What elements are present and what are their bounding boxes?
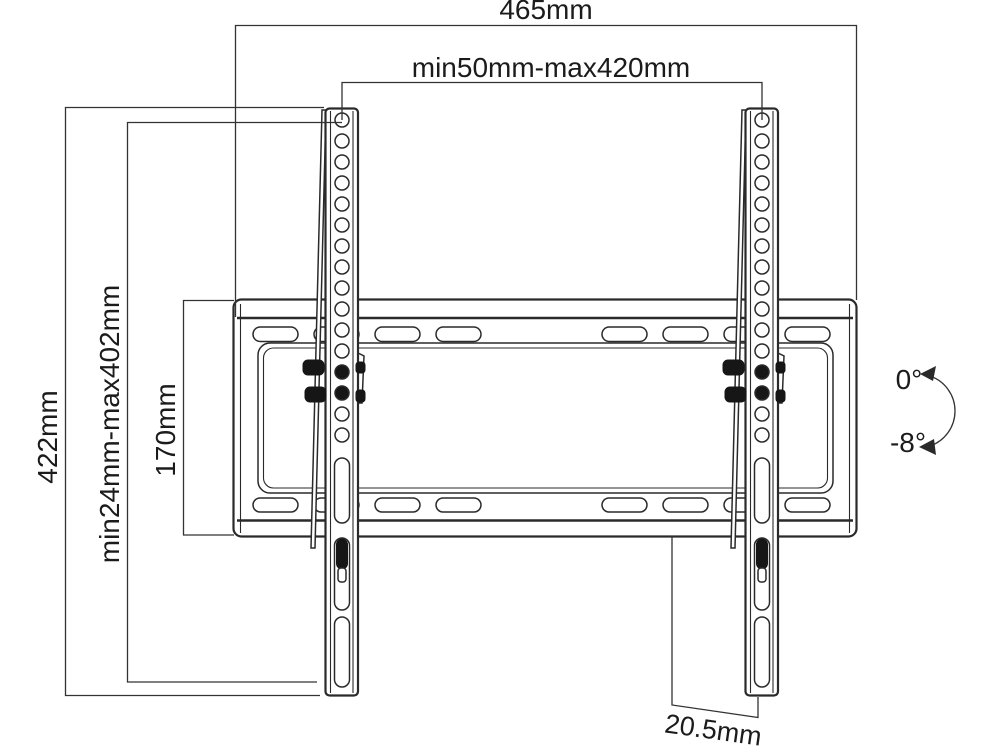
mounting-slot xyxy=(253,498,298,512)
vesa-hole xyxy=(755,218,769,232)
tilt-upper-label: 0° xyxy=(896,364,923,395)
vesa-hole xyxy=(755,302,769,316)
vesa-hole xyxy=(755,134,769,148)
vesa-hole xyxy=(335,428,349,442)
vesa-hole xyxy=(755,155,769,169)
pivot-nut xyxy=(776,390,785,402)
vesa-hole xyxy=(335,281,349,295)
vesa-hole-bolted xyxy=(755,365,769,379)
tilt-lock-clip xyxy=(338,568,346,582)
tilt-lock-bolt xyxy=(337,539,348,569)
arm-slot xyxy=(755,617,770,687)
dimension-plate-height: 170mm xyxy=(150,301,234,536)
tilt-arc xyxy=(930,376,955,446)
dim-plate-height-label: 170mm xyxy=(150,383,181,476)
vesa-hole xyxy=(335,302,349,316)
arm-slot xyxy=(755,458,770,523)
dimension-line xyxy=(184,301,235,536)
mounting-slot xyxy=(436,498,481,512)
pivot-bolt-head xyxy=(305,387,326,402)
tilt-lock-bolt xyxy=(757,539,768,569)
vesa-hole xyxy=(755,428,769,442)
vesa-hole xyxy=(335,218,349,232)
dimension-hole-span-horizontal: min50mm-max420mm xyxy=(342,52,762,120)
tilt-arrow-up-icon xyxy=(920,366,936,381)
mounting-slot xyxy=(253,327,298,342)
vesa-hole xyxy=(335,344,349,358)
vesa-hole xyxy=(755,323,769,337)
mounting-slot xyxy=(375,327,420,342)
vesa-hole xyxy=(335,407,349,421)
pivot-bolt-head xyxy=(723,360,744,375)
vesa-hole xyxy=(755,197,769,211)
vesa-hole-bolted xyxy=(755,386,769,400)
tilt-angle-indicator: 0° -8° xyxy=(890,364,955,458)
tilt-lock-clip xyxy=(758,568,766,582)
vesa-hole xyxy=(335,239,349,253)
vesa-hole-bolted xyxy=(335,386,349,400)
left-vesa-arm xyxy=(303,109,365,696)
mounting-slot xyxy=(663,498,708,512)
mounting-slot xyxy=(602,498,647,512)
vesa-hole xyxy=(755,407,769,421)
vesa-hole xyxy=(755,281,769,295)
dim-bottom-depth-label: 20.5mm xyxy=(663,708,764,749)
vesa-hole xyxy=(755,176,769,190)
pivot-bolt-head xyxy=(303,360,324,375)
mounting-slot xyxy=(663,327,708,342)
drawing-canvas: 465mm min50mm-max420mm 422mm min24mm-max… xyxy=(0,0,999,749)
dimension-line xyxy=(342,83,762,121)
vesa-hole xyxy=(755,260,769,274)
vesa-hole xyxy=(755,344,769,358)
mounting-slot xyxy=(602,327,647,342)
mounting-slot xyxy=(785,327,830,342)
right-vesa-arm xyxy=(723,109,785,696)
vesa-hole xyxy=(335,197,349,211)
vesa-hole-bolted xyxy=(335,365,349,379)
pivot-nut xyxy=(356,362,365,373)
dim-hole-span-horizontal-label: min50mm-max420mm xyxy=(412,52,691,83)
vesa-hole xyxy=(755,239,769,253)
pivot-nut xyxy=(356,390,365,402)
dim-width-total-label: 465mm xyxy=(499,0,592,25)
vesa-hole xyxy=(335,176,349,190)
pivot-nut xyxy=(776,362,785,373)
tilt-lower-label: -8° xyxy=(890,427,926,458)
mounting-slot xyxy=(375,498,420,512)
mounting-slot xyxy=(785,498,830,512)
vesa-hole xyxy=(335,323,349,337)
mounting-slot xyxy=(436,327,481,342)
dim-hole-span-vertical-label: min24mm-max402mm xyxy=(94,285,125,564)
vesa-hole xyxy=(335,134,349,148)
arm-slot xyxy=(335,458,350,523)
arm-slot xyxy=(335,617,350,687)
vesa-hole xyxy=(335,155,349,169)
vesa-hole xyxy=(335,260,349,274)
dim-height-total-label: 422mm xyxy=(32,390,63,483)
pivot-bolt-head xyxy=(725,387,746,402)
tv-mount-technical-drawing: 465mm min50mm-max420mm 422mm min24mm-max… xyxy=(0,0,999,749)
